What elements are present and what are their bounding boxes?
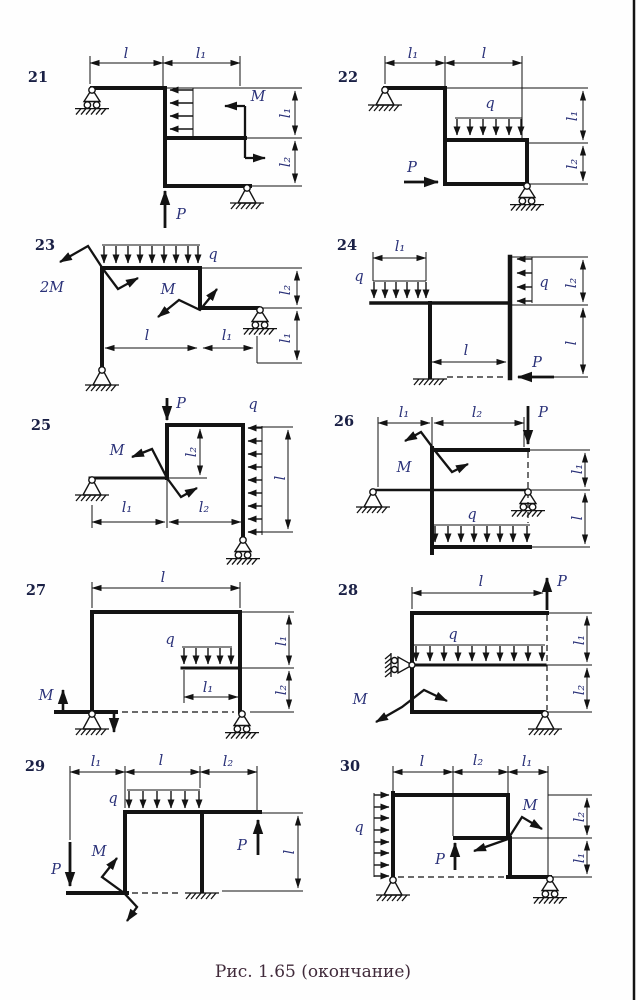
distributed-load-q [127,790,200,808]
scanned-figure-page: 21 l l₁ l₁ l₂ M P 22 [0,0,637,1000]
load-q-right-label: q [539,275,548,291]
diagram-number: 22 [338,69,358,86]
distributed-load-q [248,426,262,535]
support-pin-bottom-right [528,711,562,735]
distributed-load-q-right [517,257,532,303]
moment-M-label: M [160,282,177,298]
dim-label-l2: l₂ [223,754,234,770]
figure-caption: Рис. 1.65 (окончание) [215,962,411,982]
dim-label-l1-right: l₁ [278,333,294,343]
dimension-lines [393,766,592,877]
dim-label-l-right: l [273,475,289,480]
diagram-24: 24 l₁ l₂ l l q q P [337,237,588,385]
force-P-down-label: P [50,862,61,878]
dim-label-l2-right: l₂ [278,285,294,296]
moment-2M-label: 2M [39,280,65,296]
dim-label-l: l [145,328,150,344]
moment-M-label: M [91,844,108,860]
support-roller-right [243,307,277,335]
support-fixed-bottom [185,893,219,899]
distributed-load-q [433,525,530,542]
diagram-30: 30 l l₂ l₁ l₂ l₁ q P M [340,753,592,904]
dim-label-l1: l₁ [399,405,409,421]
moment-M-label: M [396,460,413,476]
frame-members [371,257,510,378]
diagram-number: 28 [338,582,358,599]
dimension-lines [90,56,302,186]
diagram-28: 28 l l₁ l₂ P q M [338,574,592,735]
distributed-load-q [102,245,200,263]
force-P-label: P [175,396,186,412]
dim-label-l-right: l [282,849,298,854]
dim-label-l2-vert: l₂ [184,447,200,458]
force-P-label: P [537,405,548,421]
force-P-label: P [531,355,542,371]
dim-label-l1: l₁ [222,328,232,344]
dim-label-l2-right: l₂ [278,157,294,168]
diagram-number: 27 [26,582,46,599]
figure-canvas: 21 l l₁ l₁ l₂ M P 22 [0,0,637,1000]
distributed-load-horizontal [170,88,193,138]
diagram-number: 26 [334,413,354,430]
load-q-label: q [448,627,457,643]
force-P-label: P [406,160,417,176]
dim-label-l: l [479,574,484,590]
load-q-label: q [485,96,494,112]
support-pin-bottom-right [230,185,264,209]
diagram-23: 23 2M q M l l₁ l₂ l₁ [35,237,302,391]
dim-label-l1-right: l₁ [274,636,290,646]
support-roller-bottom-right [225,711,259,739]
diagram-29: 29 l₁ l l₂ l q P P M [25,753,303,921]
dim-label-l2: l₂ [199,500,210,516]
dim-label-l1-right: l₁ [278,108,294,118]
dimension-lines [105,268,302,363]
moment-couple-arrow [225,106,265,158]
dim-label-l1-right: l₁ [565,111,581,121]
load-q-label: q [108,791,117,807]
load-q-label: q [165,632,174,648]
dim-label-l1: l₁ [91,754,101,770]
dimension-lines [412,587,592,712]
diagram-27: 27 l l₁ l₁ l₂ q M [26,570,294,739]
dim-label-l2-right: l₂ [274,685,290,696]
dim-label-l2-right: l₂ [572,812,588,823]
moment-M-label: M [522,798,539,814]
distributed-load-q [374,793,389,877]
support-roller-bottom-right [226,537,260,565]
dim-label-l: l [161,570,166,586]
dim-label-l2: l₂ [473,753,484,769]
support-pin-bottom-left [85,367,119,391]
support-roller-top-left [75,87,109,115]
diagram-number: 23 [35,237,55,254]
moment-M-arrow [102,858,137,921]
moment-M-label: M [352,692,369,708]
diagram-number: 24 [337,237,357,254]
dim-label-l1: l₁ [522,754,532,770]
distributed-load-q [414,645,545,661]
diagram-number: 21 [28,69,48,86]
dim-label-l: l [159,753,164,769]
diagram-26: 26 l₁ l₂ l₁ l P q M [334,405,590,553]
dim-label-l2-right: l₂ [572,685,588,696]
load-q-label: q [467,507,476,523]
load-q-label: q [248,397,257,413]
diagram-number: 29 [25,758,45,775]
dimension-lines [373,252,588,377]
dim-label-l-right: l [570,515,586,520]
diagram-22: 22 l₁ l l₁ l₂ q P [338,46,588,211]
support-pin-bottom-left [75,711,109,735]
dim-label-l2-right: l₂ [564,278,580,289]
frame-members [102,268,258,368]
support-roller-bottom-right [533,876,567,904]
dim-label-l1-right: l₁ [572,853,588,863]
dim-label-l1: l₁ [395,239,405,255]
moment-couple [56,690,116,732]
support-roller-bottom-right [510,183,544,211]
dim-label-l: l [124,46,129,62]
force-P-up-label: P [236,838,247,854]
dimension-lines [378,417,590,547]
distributed-load-q [182,647,232,664]
dim-label-l1: l₁ [196,46,206,62]
support-pin-left [356,489,390,513]
force-P-label: P [175,207,186,223]
diagram-number: 30 [340,758,360,775]
dim-label-l-bottom: l [464,343,469,359]
distributed-load-q-left [373,281,426,298]
force-P-label: P [556,574,567,590]
force-P-label: P [434,852,445,868]
support-pin-left [75,477,109,501]
distributed-load-q [455,118,522,135]
dim-label-l1-right: l₁ [572,635,588,645]
dim-label-l: l [420,754,425,770]
diagram-25: 25 P q l₂ l l₁ l₂ M [31,396,293,565]
load-q-label: q [208,247,217,263]
dim-label-l: l [482,46,487,62]
frame-members [412,613,547,712]
diagram-21: 21 l l₁ l₁ l₂ M P [28,46,302,228]
support-pin-top-left [368,87,402,111]
moment-M-label: M [38,688,55,704]
load-q-left-label: q [354,269,363,285]
diagram-number: 25 [31,417,51,434]
dim-label-l1: l₁ [408,46,418,62]
dim-label-l1: l₁ [122,500,132,516]
dim-label-l2: l₂ [472,405,483,421]
support-pin-bottom-left [376,877,410,901]
dim-label-l-right: l [564,340,580,345]
dim-label-l1-right: l₁ [570,464,586,474]
dim-label-l2-right: l₂ [565,159,581,170]
dim-label-l1: l₁ [203,680,213,696]
support-fixed-bottom-left [413,379,447,385]
moment-M-label: M [109,443,126,459]
moment-label: M [250,89,267,105]
load-q-label: q [354,820,363,836]
